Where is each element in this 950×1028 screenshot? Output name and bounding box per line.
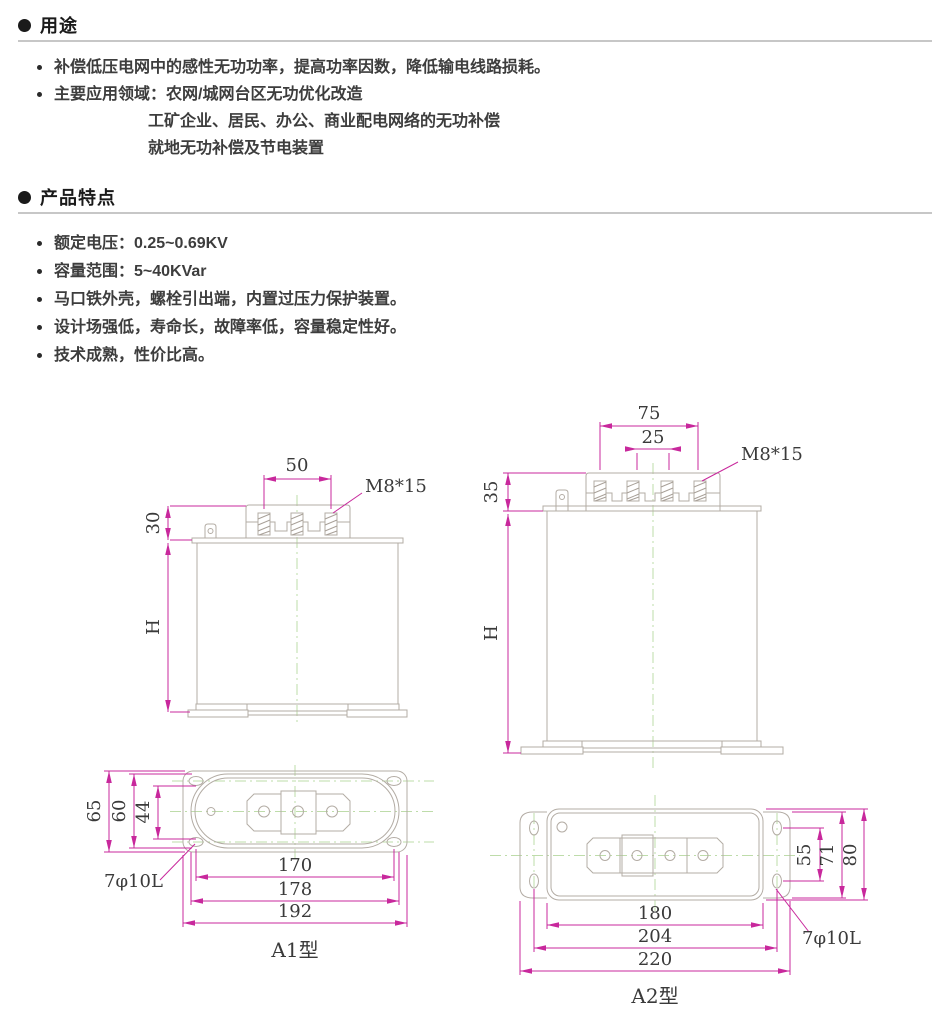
dim-hole-spacing-h: 170	[278, 855, 312, 876]
bullet-icon	[37, 92, 42, 97]
bullet-icon	[37, 325, 42, 330]
usage-item-text: 就地无功补偿及节电装置	[148, 140, 324, 157]
arrowhead	[839, 812, 845, 824]
a2-caption: A2型	[630, 984, 678, 1008]
section-bullet-icon	[18, 191, 31, 204]
dim-hole-spacing-v: 44	[133, 801, 154, 824]
features-section-title: 产品特点	[40, 184, 116, 210]
extension-lines	[170, 475, 331, 712]
usage-item-text: 主要应用领域：农网/城网台区无功优化改造	[54, 86, 362, 103]
arrowhead	[751, 922, 763, 928]
foot	[543, 741, 582, 747]
dim-body-length: 180	[638, 903, 672, 924]
arrowhead	[196, 874, 208, 880]
arrowhead	[155, 786, 161, 798]
arrowhead	[183, 920, 195, 926]
terminal-screw	[291, 513, 303, 535]
thread-label: M8*15	[741, 444, 803, 465]
arrowhead	[817, 869, 823, 881]
arrowhead	[669, 446, 681, 452]
bullet-icon	[37, 269, 42, 274]
arrowhead	[131, 836, 137, 848]
tab-hole	[208, 529, 213, 534]
tab-hole	[560, 495, 565, 500]
features-section-header: 产品特点	[18, 184, 116, 210]
arrowhead	[191, 898, 203, 904]
arrowhead	[625, 446, 637, 452]
dim-inner-pitch: 25	[642, 427, 665, 448]
hole-leader-line	[160, 844, 195, 880]
arrowhead	[520, 968, 532, 974]
dimension-lines	[508, 426, 698, 753]
arrowhead	[319, 476, 331, 482]
features-divider	[18, 212, 932, 214]
arrowhead	[382, 874, 394, 880]
arrowhead	[505, 741, 511, 753]
terminal-screw	[325, 513, 337, 535]
a2-bottom-view: 55 71 80 180 204 220 7φ10L A2型	[490, 795, 868, 1008]
features-list: 额定电压：0.25~0.69KV 容量范围：5~40KVar 马口铁外壳，螺栓引…	[37, 230, 406, 370]
drain-hole	[557, 822, 567, 832]
a1-caption: A1型	[270, 938, 318, 962]
dim-outer-pitch: 75	[638, 403, 661, 424]
hole-leader-line	[776, 889, 809, 932]
arrowhead	[106, 771, 112, 783]
arrowhead	[505, 514, 511, 526]
dimension-lines	[168, 479, 331, 712]
terminal-screw	[258, 513, 270, 535]
foot	[348, 704, 399, 710]
base-plate	[583, 748, 721, 752]
feature-item: 技术成熟，性价比高。	[37, 342, 406, 370]
arrowhead	[387, 898, 399, 904]
bullet-icon	[37, 241, 42, 246]
top-flange	[543, 506, 761, 511]
feature-item-text: 马口铁外壳，螺栓引出端，内置过压力保护装置。	[54, 291, 406, 308]
dim-bracket-height: 71	[817, 844, 838, 867]
a1-bottom-view: 65 60 44 170 178 192 7φ10L A1型	[84, 765, 437, 962]
dim-plate-length: 192	[278, 901, 312, 922]
arrowhead	[861, 809, 867, 821]
foot	[722, 741, 761, 747]
arrowhead	[395, 920, 407, 926]
terminal-block-left	[247, 794, 281, 831]
capacitor-body	[547, 511, 757, 741]
arrowhead	[778, 968, 790, 974]
dim-plate-height: 65	[84, 800, 105, 823]
arrowhead	[817, 828, 823, 840]
usage-item-text: 补偿低压电网中的感性无功功率，提高功率因数，降低输电线路损耗。	[54, 59, 550, 76]
dim-cap-height: 30	[143, 512, 164, 535]
usage-divider	[18, 40, 932, 42]
terminal-screw	[594, 481, 606, 501]
arrowhead	[600, 423, 612, 429]
arrowhead	[861, 888, 867, 900]
a1-side-view: 50 M8*15 30 H	[143, 455, 427, 725]
foot	[521, 747, 583, 754]
foot	[721, 747, 783, 754]
thread-leader-line	[333, 493, 362, 513]
usage-item: 补偿低压电网中的感性无功功率，提高功率因数，降低输电线路损耗。	[37, 54, 550, 81]
terminal-screw	[627, 481, 639, 501]
dimension-drawings: 50 M8*15 30 H	[0, 403, 950, 1028]
arrowhead	[106, 840, 112, 852]
arrowhead	[155, 827, 161, 839]
bullet-icon	[37, 65, 42, 70]
arrowhead	[547, 922, 559, 928]
arrowhead	[505, 473, 511, 485]
arrowhead	[686, 423, 698, 429]
terminal-screw	[694, 481, 706, 501]
feature-item: 马口铁外壳，螺栓引出端，内置过压力保护装置。	[37, 286, 406, 314]
arrowhead	[505, 499, 511, 511]
arrowhead	[131, 774, 137, 786]
hole-label: 7φ10L	[104, 871, 163, 892]
lifting-tab	[556, 490, 568, 511]
section-bullet-icon	[18, 19, 31, 32]
bullet-icon	[37, 297, 42, 302]
terminal-block-right	[316, 794, 350, 831]
feature-item: 额定电压：0.25~0.69KV	[37, 230, 406, 258]
hole-label: 7φ10L	[802, 928, 861, 949]
extension-lines	[520, 809, 868, 975]
arrowhead	[264, 476, 276, 482]
arrowhead	[839, 886, 845, 898]
dim-oval-length: 178	[278, 879, 312, 900]
feature-item-text: 技术成熟，性价比高。	[54, 347, 214, 364]
usage-item-text: 工矿企业、居民、办公、商业配电网络的无功补偿	[148, 113, 500, 130]
dim-overall-length: 220	[638, 949, 672, 970]
feature-item-text: 设计场强低，寿命长，故障率低，容量稳定性好。	[54, 319, 406, 336]
dim-hole-spacing-v: 55	[794, 844, 815, 867]
feature-item: 设计场强低，寿命长，故障率低，容量稳定性好。	[37, 314, 406, 342]
usage-section-header: 用途	[18, 12, 78, 38]
bullet-icon	[37, 353, 42, 358]
a2-side-view: 75 25 M8*15 35 H	[481, 403, 803, 768]
arrowhead	[534, 945, 546, 951]
terminal-screw	[661, 481, 673, 501]
usage-item: 就地无功补偿及节电装置	[37, 135, 550, 162]
usage-section-title: 用途	[40, 12, 78, 38]
arrowhead	[165, 528, 171, 540]
usage-list: 补偿低压电网中的感性无功功率，提高功率因数，降低输电线路损耗。 主要应用领域：农…	[37, 54, 550, 162]
usage-item: 主要应用领域：农网/城网台区无功优化改造	[37, 81, 550, 108]
arrowhead	[765, 945, 777, 951]
extension-lines	[503, 422, 698, 753]
arrowhead	[165, 506, 171, 518]
feature-item-text: 容量范围：5~40KVar	[54, 263, 207, 280]
dim-body-height: 80	[840, 844, 861, 867]
lifting-tab	[205, 524, 216, 538]
feature-item-text: 额定电压：0.25~0.69KV	[54, 235, 228, 252]
dim-hole-spacing-h: 204	[638, 926, 672, 947]
dim-oval-height: 60	[109, 800, 130, 823]
catalog-page: 用途 补偿低压电网中的感性无功功率，提高功率因数，降低输电线路损耗。 主要应用领…	[0, 0, 950, 1028]
foot	[188, 710, 248, 717]
usage-item: 工矿企业、居民、办公、商业配电网络的无功补偿	[37, 108, 550, 135]
terminal-block-center	[281, 791, 316, 834]
foot	[196, 704, 247, 710]
dim-cap-height: 35	[481, 481, 502, 504]
foot	[347, 710, 407, 717]
arrowhead	[165, 543, 171, 555]
arrowhead	[165, 700, 171, 712]
dim-body-height: H	[481, 625, 502, 641]
feature-item: 容量范围：5~40KVar	[37, 258, 406, 286]
dim-body-height: H	[143, 619, 164, 635]
dim-terminal-pitch: 50	[286, 455, 309, 476]
thread-label: M8*15	[365, 476, 427, 497]
